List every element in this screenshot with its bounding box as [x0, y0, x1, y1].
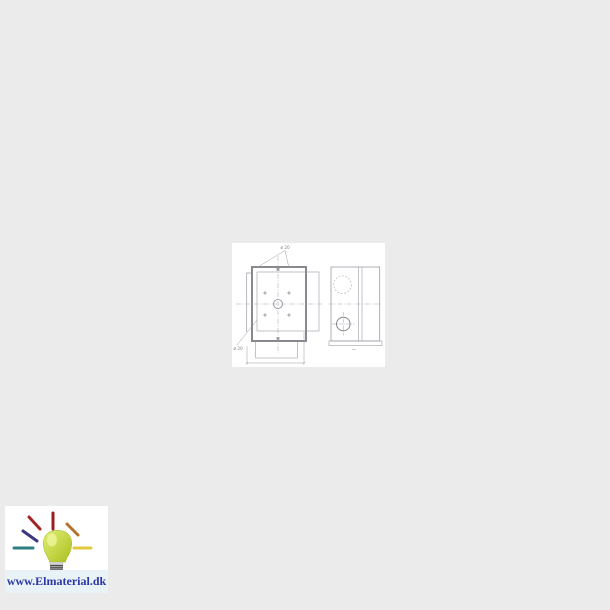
diameter-label-top: ø 20: [281, 245, 291, 250]
top-screw-boss: [277, 268, 280, 271]
light-ray-upper-left: [29, 517, 40, 529]
inner-opening-outline: [257, 272, 319, 331]
bulb-highlight: [47, 534, 57, 547]
lower-knockout-crosshair: [332, 312, 355, 336]
bulb-glass: [43, 530, 71, 562]
product-technical-drawing: ø 20 ø 20: [232, 243, 385, 367]
lightbulb-icon: [5, 506, 108, 572]
top-knockout-leaders: [257, 251, 289, 269]
technical-drawing-svg: ø 20 ø 20: [232, 243, 385, 367]
diameter-label-side: ø 20: [234, 346, 244, 351]
lower-lug-outline: [256, 341, 298, 358]
drawing-front-view: [236, 251, 323, 365]
brand-url-text: www.Elmaterial.dk: [7, 574, 106, 589]
page: { "page": { "background_color": "#ebebeb…: [0, 0, 610, 610]
bottom-screw-boss: [277, 337, 280, 340]
brand-text-band: www.Elmaterial.dk: [5, 570, 108, 593]
bottom-dimension: [246, 332, 305, 365]
light-ray-left-diagonal: [23, 531, 37, 541]
brand-watermark: www.Elmaterial.dk: [5, 506, 108, 593]
drawing-side-view: [329, 267, 383, 350]
upper-knockout-hidden: [334, 276, 352, 294]
light-ray-upper-right: [67, 524, 78, 535]
side-base-flange: [329, 341, 382, 346]
